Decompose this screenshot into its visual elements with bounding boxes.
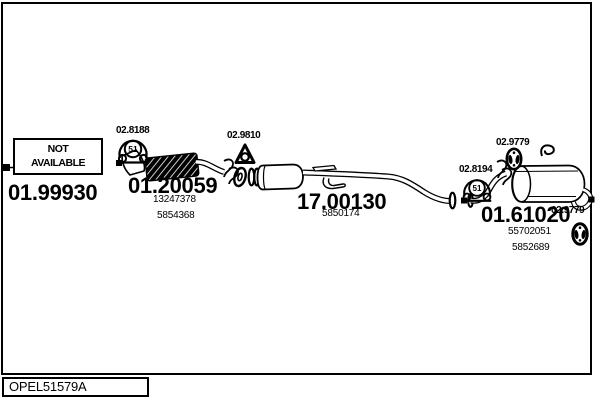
rubber-hanger-icon bbox=[573, 224, 587, 244]
oem-number: 5852689 bbox=[512, 243, 550, 253]
mount-code-gasket-triangle[interactable]: 02.9810 bbox=[227, 131, 260, 141]
mount-code-gasket-front[interactable]: 02.8188 bbox=[116, 126, 149, 136]
connector-marker-rear bbox=[589, 197, 595, 203]
pipe-end-flange bbox=[450, 193, 456, 209]
triangle-gasket-icon bbox=[236, 145, 254, 163]
oem-number: 13247378 bbox=[153, 195, 196, 205]
part-code-not-available[interactable]: 01.99930 bbox=[8, 182, 97, 204]
not-available-line1: NOT bbox=[48, 143, 69, 156]
rubber-hanger-icon bbox=[507, 149, 521, 169]
mount-code-hanger-tail[interactable]: 02.9779 bbox=[551, 206, 584, 216]
rear-muffler-drawing bbox=[468, 145, 594, 208]
not-available-line2: AVAILABLE bbox=[31, 157, 85, 170]
oem-number: 5850174 bbox=[322, 209, 360, 219]
mount-code-gasket-rear[interactable]: 02.8194 bbox=[459, 165, 492, 175]
hanger-hook-icon bbox=[541, 145, 554, 156]
oem-number: 5854368 bbox=[157, 211, 195, 221]
ring-gasket-icon bbox=[232, 167, 259, 188]
connector-marker-left bbox=[3, 164, 13, 171]
pipe-hook-bracket bbox=[323, 178, 345, 189]
gasket-symbol: 51 bbox=[473, 184, 482, 193]
oem-number: 55702051 bbox=[508, 227, 551, 237]
diagram-code: OPEL51579A bbox=[9, 379, 87, 394]
gasket-symbol: 51 bbox=[128, 144, 138, 154]
pipe-bracket bbox=[313, 166, 336, 172]
diagram-code-box: OPEL51579A bbox=[2, 377, 149, 397]
mount-code-hanger-mid[interactable]: 02.9779 bbox=[496, 138, 529, 148]
not-available-box: NOT AVAILABLE bbox=[13, 138, 103, 175]
exhaust-diagram-page: 51 51 bbox=[0, 0, 600, 400]
